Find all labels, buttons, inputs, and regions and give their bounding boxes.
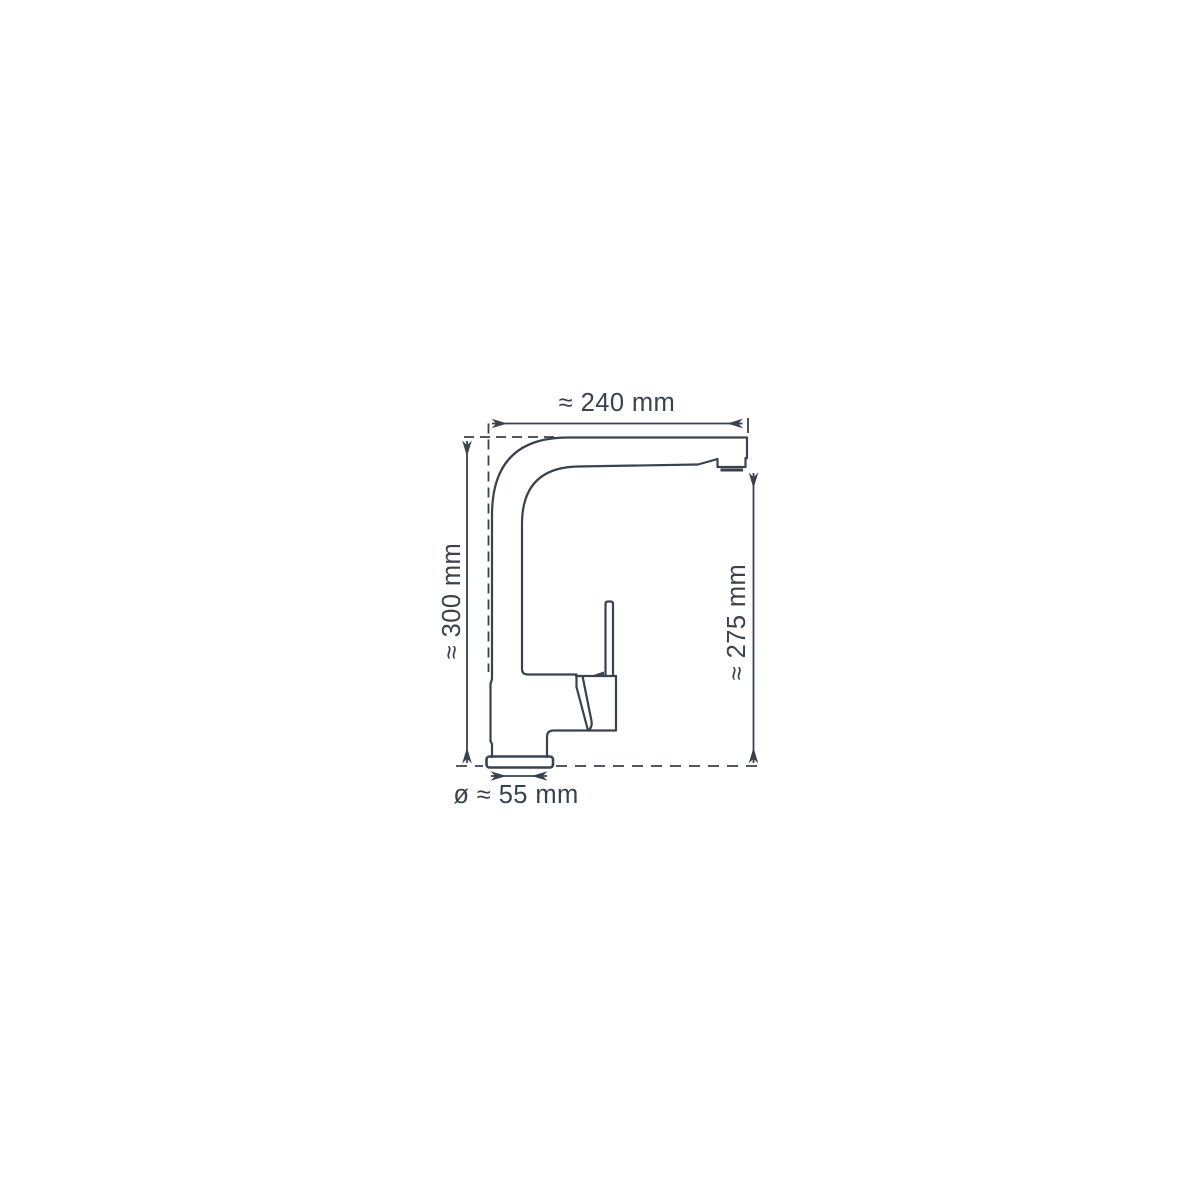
label-outlet-height: ≈ 275 mm bbox=[723, 564, 751, 680]
faucet-outline bbox=[487, 438, 748, 768]
dimension-lines bbox=[467, 424, 754, 777]
lever-base-wedge bbox=[589, 672, 604, 677]
dimension-labels: ≈ 240 mm ≈ 300 mm ≈ 275 mm ø ≈ 55 mm bbox=[438, 389, 751, 809]
label-total-height: ≈ 300 mm bbox=[438, 543, 466, 659]
technical-drawing: ≈ 240 mm ≈ 300 mm ≈ 275 mm ø ≈ 55 mm bbox=[0, 0, 1200, 1200]
base-flange bbox=[487, 757, 554, 768]
faucet-body-profile bbox=[491, 438, 748, 758]
mixer-body-profile bbox=[547, 676, 616, 757]
lever-handle bbox=[606, 602, 614, 677]
label-base-diameter: ø ≈ 55 mm bbox=[453, 781, 578, 809]
handle-front-edge bbox=[577, 675, 589, 731]
handle-front-edge-inner bbox=[583, 676, 592, 730]
label-spout-reach: ≈ 240 mm bbox=[559, 389, 675, 417]
faucet-dimension-diagram: ≈ 240 mm ≈ 300 mm ≈ 275 mm ø ≈ 55 mm bbox=[0, 0, 1200, 1200]
